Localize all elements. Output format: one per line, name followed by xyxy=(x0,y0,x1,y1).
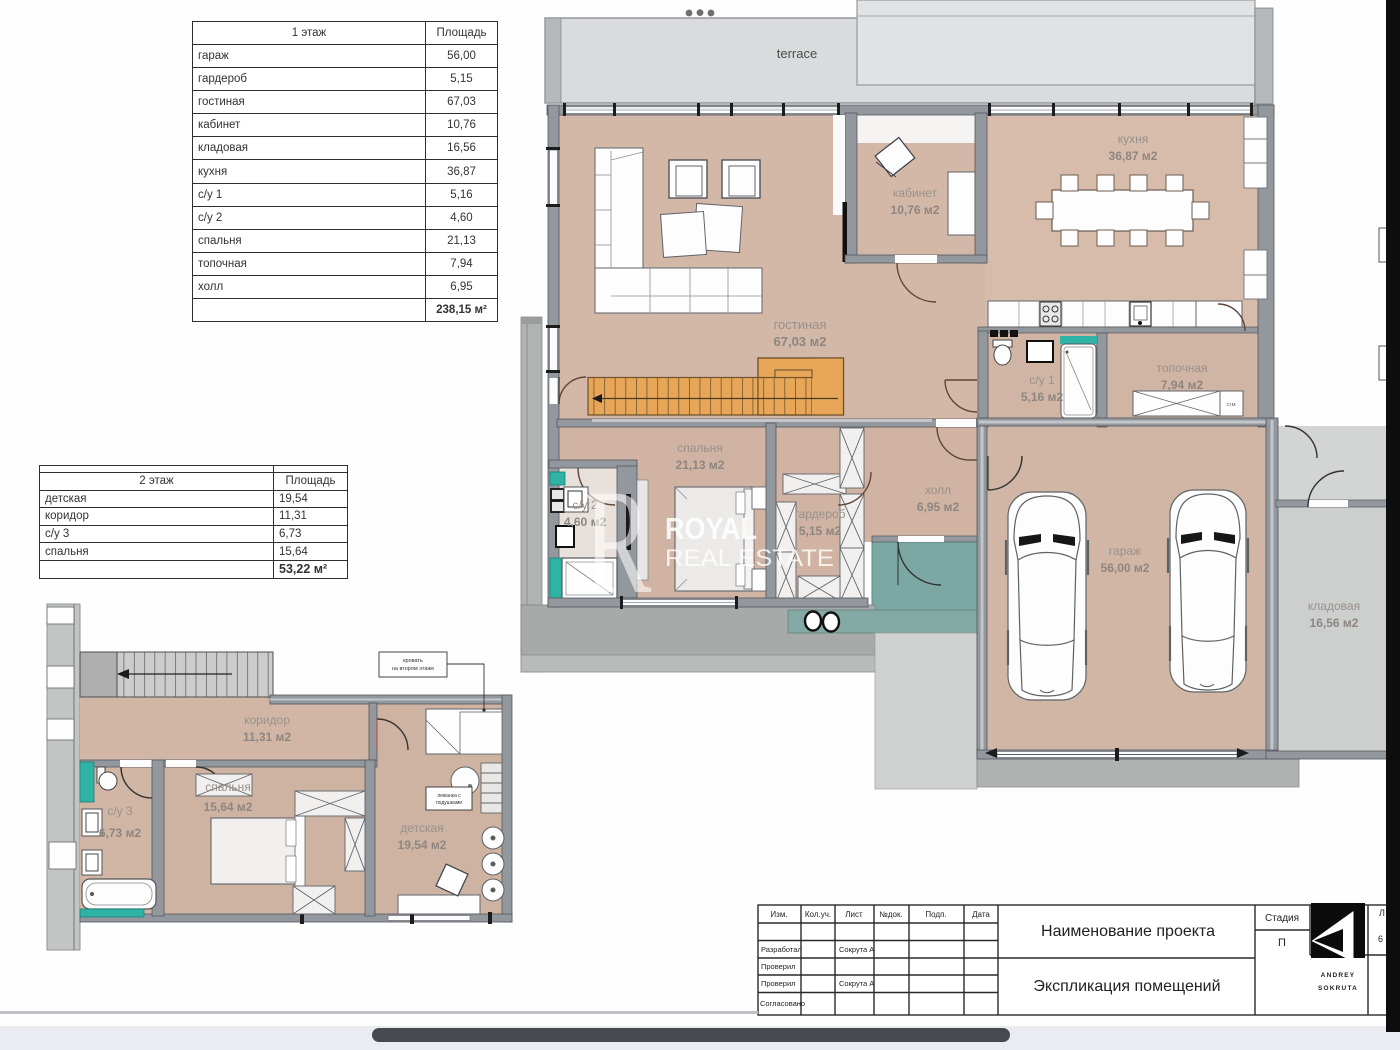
svg-text:спальня: спальня xyxy=(205,780,251,794)
svg-text:15,64 м2: 15,64 м2 xyxy=(204,800,253,814)
svg-text:67,03 м2: 67,03 м2 xyxy=(774,334,827,349)
svg-text:5,16 м2: 5,16 м2 xyxy=(1021,390,1064,404)
svg-text:холл: холл xyxy=(925,483,951,497)
svg-text:подушками: подушками xyxy=(436,800,462,806)
svg-text:5,15 м2: 5,15 м2 xyxy=(799,524,842,538)
svg-text:СтМ: СтМ xyxy=(1226,402,1235,407)
svg-text:7,94 м2: 7,94 м2 xyxy=(1161,378,1204,392)
svg-text:кабинет: кабинет xyxy=(893,186,938,200)
svg-text:6,73 м2: 6,73 м2 xyxy=(99,826,142,840)
svg-text:топочная: топочная xyxy=(1157,361,1208,375)
svg-text:11,31 м2: 11,31 м2 xyxy=(243,730,292,744)
svg-text:на втором этаже: на втором этаже xyxy=(392,666,434,672)
svg-text:19,54 м2: 19,54 м2 xyxy=(398,838,447,852)
svg-text:6,95 м2: 6,95 м2 xyxy=(917,500,960,514)
svg-text:21,13 м2: 21,13 м2 xyxy=(676,458,725,472)
svg-text:лежанка с: лежанка с xyxy=(437,793,461,799)
svg-text:гардероб: гардероб xyxy=(794,507,845,521)
svg-text:REAL ESTATE: REAL ESTATE xyxy=(665,545,834,572)
svg-text:коридор: коридор xyxy=(244,713,290,727)
svg-text:гараж: гараж xyxy=(1109,544,1141,558)
svg-text:terrace: terrace xyxy=(777,46,817,61)
svg-text:детская: детская xyxy=(400,821,443,835)
svg-text:с/у 3: с/у 3 xyxy=(107,804,133,818)
svg-text:кухня: кухня xyxy=(1118,132,1149,146)
svg-text:ROYAL: ROYAL xyxy=(665,511,757,546)
svg-text:спальня: спальня xyxy=(677,441,723,455)
svg-text:с/у 1: с/у 1 xyxy=(1029,373,1055,387)
svg-text:16,56 м2: 16,56 м2 xyxy=(1310,616,1359,630)
svg-text:R: R xyxy=(583,459,651,625)
svg-text:кровать: кровать xyxy=(403,658,423,664)
svg-text:10,76 м2: 10,76 м2 xyxy=(891,203,940,217)
svg-text:гостиная: гостиная xyxy=(774,317,827,332)
svg-text:56,00 м2: 56,00 м2 xyxy=(1101,561,1150,575)
svg-text:36,87 м2: 36,87 м2 xyxy=(1109,149,1158,163)
svg-text:кладовая: кладовая xyxy=(1308,599,1360,613)
